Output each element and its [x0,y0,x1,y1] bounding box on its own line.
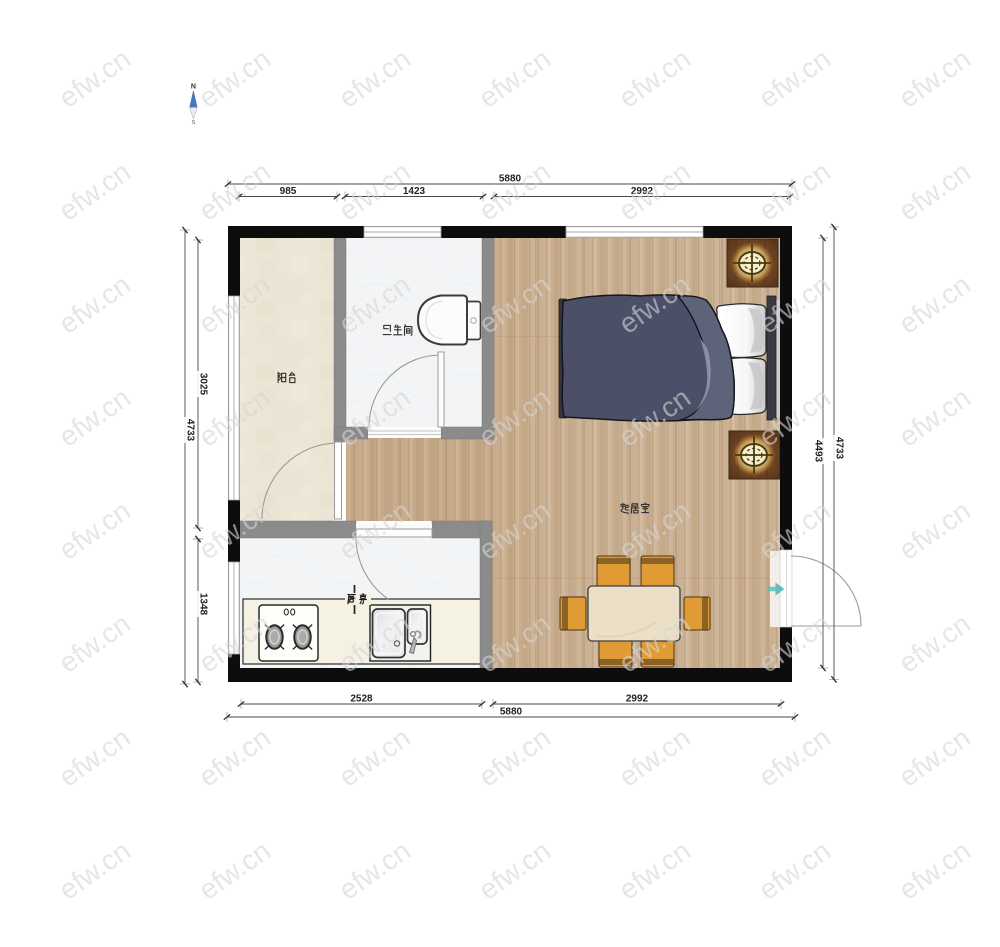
svg-text:S: S [192,120,196,126]
svg-text:4733: 4733 [834,437,845,460]
svg-text:985: 985 [280,186,297,197]
svg-text:1348: 1348 [198,593,209,616]
svg-text:4493: 4493 [813,440,824,463]
svg-text:4733: 4733 [185,419,196,442]
svg-text:2528: 2528 [350,694,373,705]
svg-text:2992: 2992 [626,694,649,705]
svg-text:5880: 5880 [500,707,523,718]
svg-text:3025: 3025 [198,373,209,396]
